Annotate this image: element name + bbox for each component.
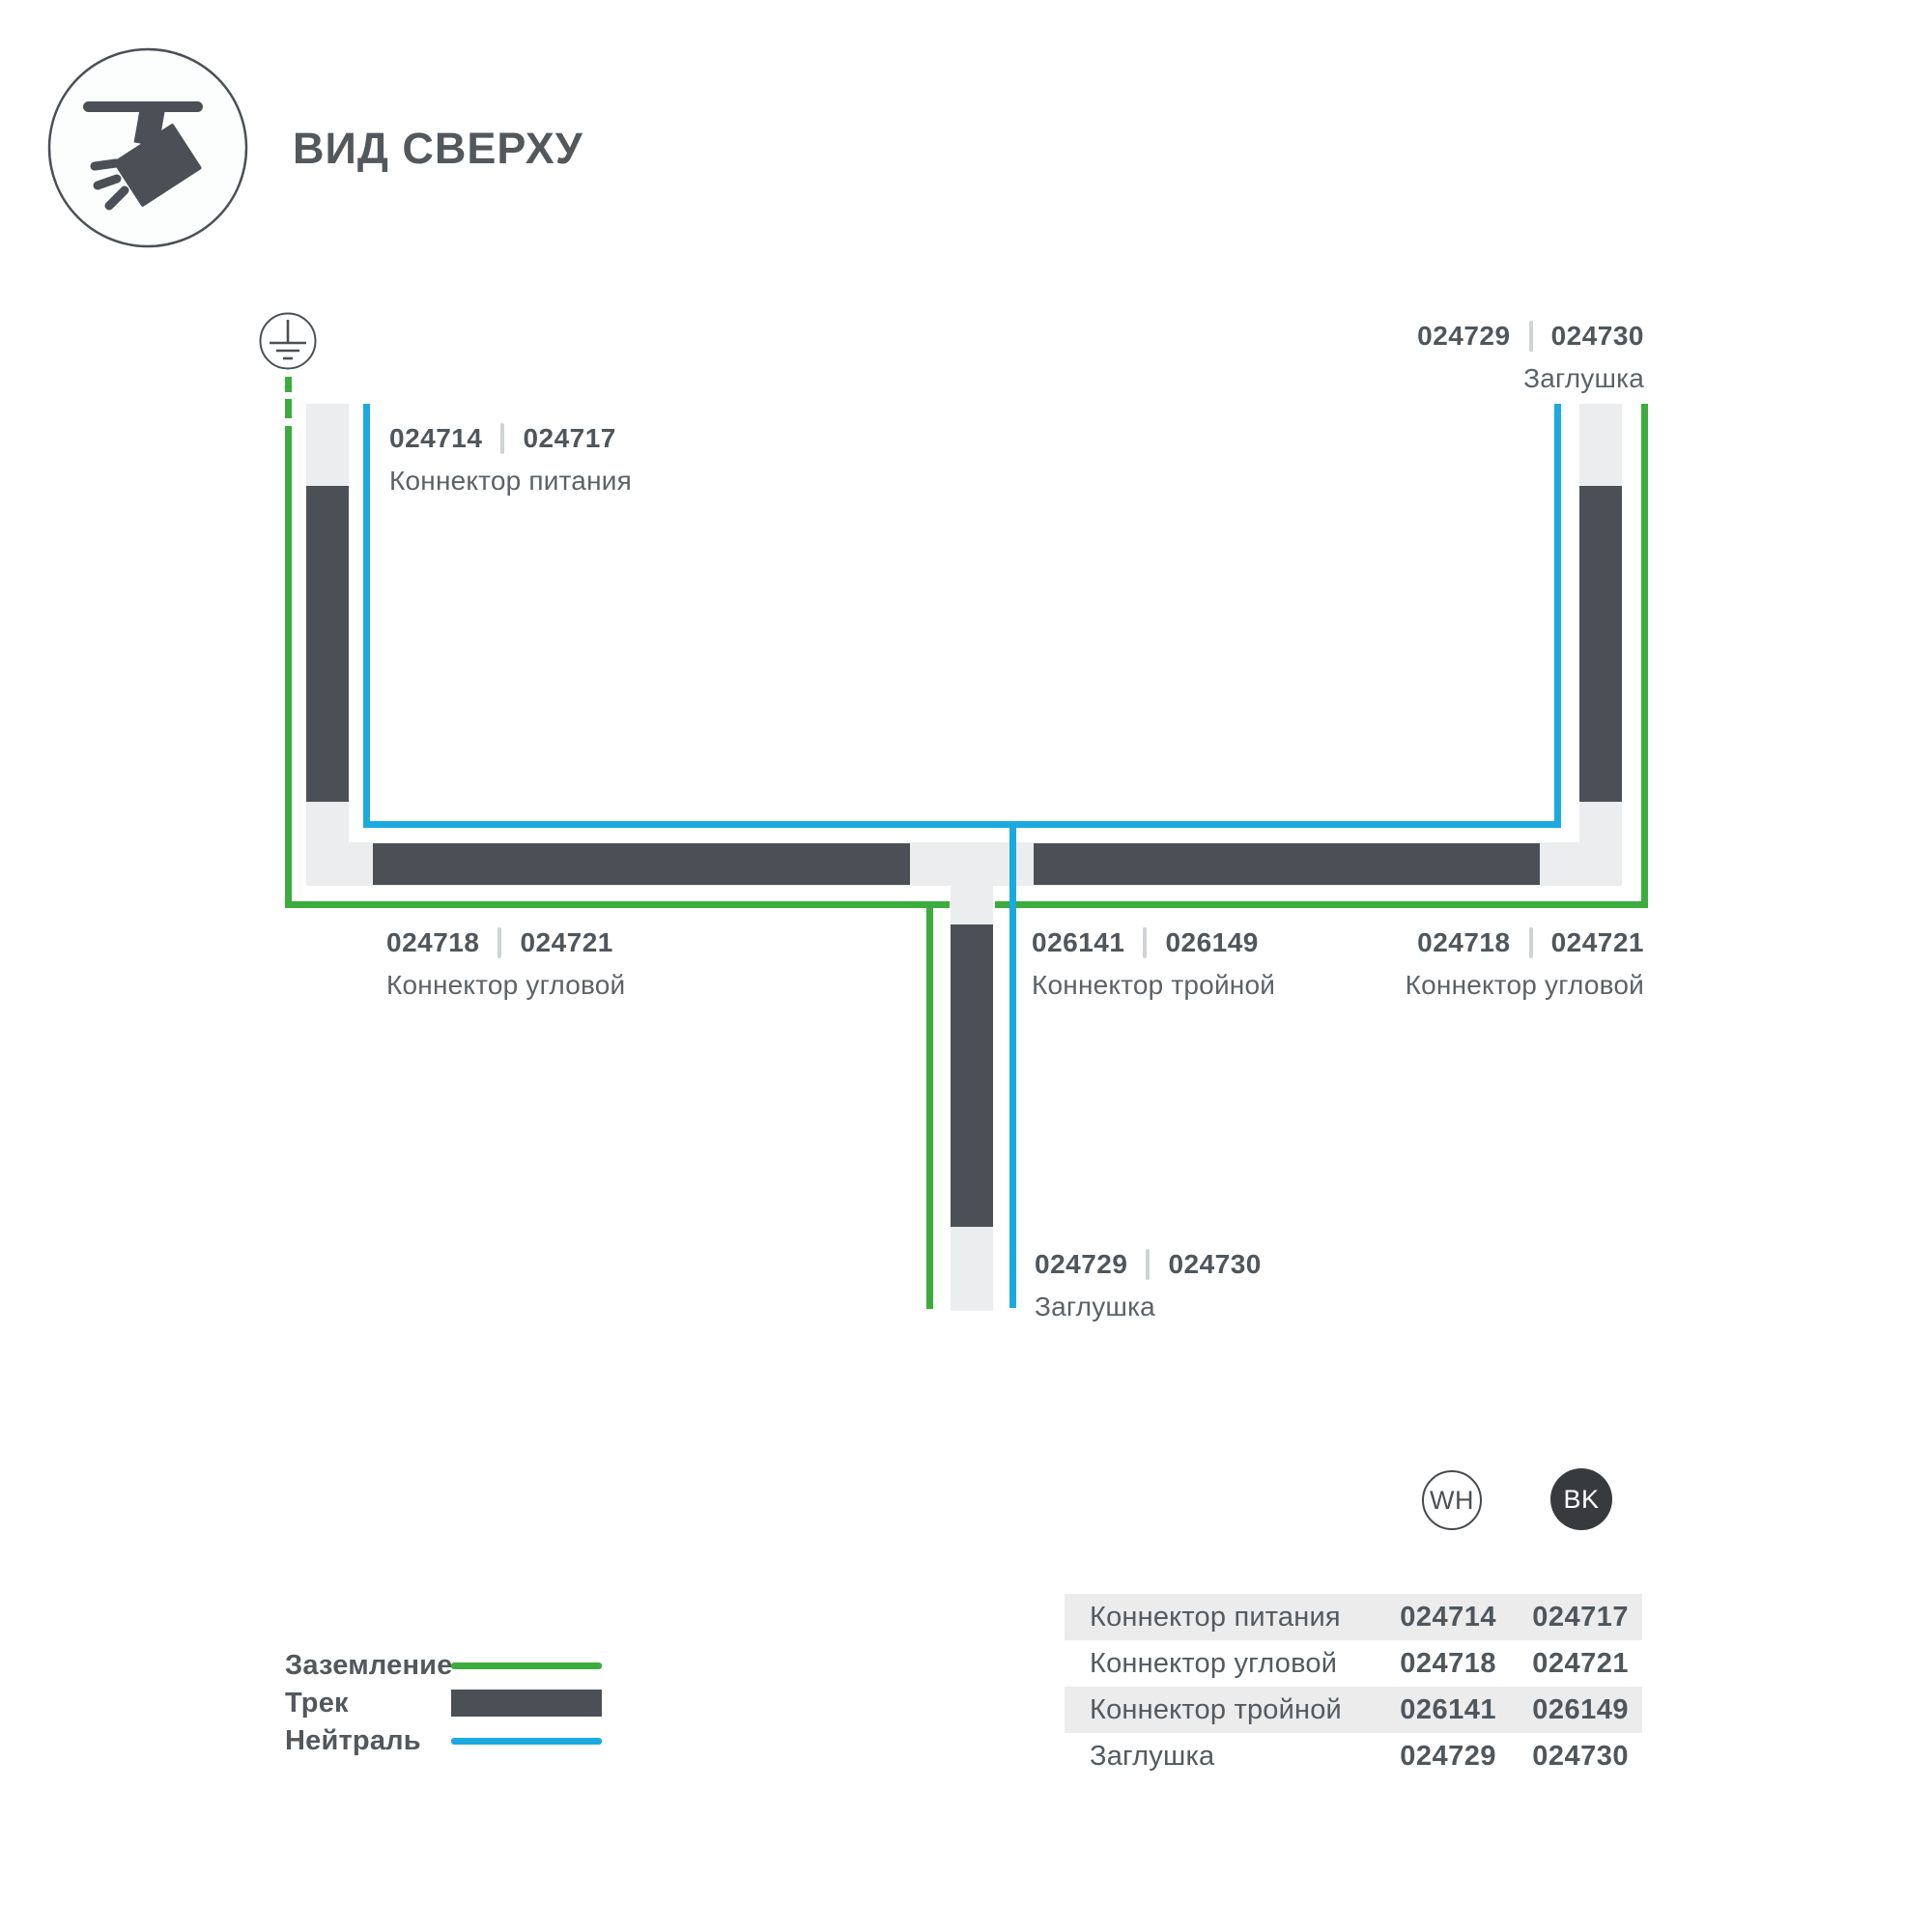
page-title: ВИД СВЕРХУ bbox=[293, 124, 583, 174]
ground-line-right bbox=[1641, 404, 1648, 908]
legend-label: Заземление bbox=[285, 1650, 451, 1682]
track-segment-right bbox=[1579, 486, 1622, 802]
part-name: Коннектор угловой bbox=[1406, 966, 1644, 1004]
part-numbers: 024729024730 bbox=[1035, 1245, 1262, 1288]
number-separator bbox=[1529, 321, 1533, 352]
number-separator bbox=[500, 423, 504, 454]
row-wh-number: 024729 bbox=[1395, 1741, 1496, 1773]
label-endcap-bottom: 024729024730 Заглушка bbox=[1035, 1245, 1262, 1325]
row-bk-number: 024717 bbox=[1496, 1602, 1642, 1634]
part-numbers: 024729024730 bbox=[1417, 317, 1644, 359]
row-name: Заглушка bbox=[1065, 1741, 1395, 1773]
row-name: Коннектор питания bbox=[1065, 1602, 1395, 1634]
number-separator bbox=[1146, 1249, 1150, 1280]
ground-icon bbox=[259, 312, 317, 370]
ground-line-bottom-b bbox=[995, 901, 1648, 908]
neutral-line-right bbox=[1554, 404, 1561, 828]
number-separator bbox=[1529, 927, 1533, 958]
ground-line-dash-1 bbox=[285, 377, 292, 392]
ground-line-dash-2 bbox=[285, 399, 292, 418]
label-corner-connector-right: 024718024721 Коннектор угловой bbox=[1406, 923, 1644, 1004]
neutral-line-bottom bbox=[363, 821, 1561, 828]
neutral-line-left bbox=[363, 404, 370, 828]
row-bk-number: 024730 bbox=[1496, 1741, 1642, 1773]
track-segment-bottom-left bbox=[373, 843, 910, 885]
number-separator bbox=[497, 927, 501, 958]
part-numbers: 024714024717 bbox=[389, 419, 632, 462]
black-variant-badge: BK bbox=[1550, 1468, 1612, 1530]
ground-line-bottom-a bbox=[285, 901, 950, 908]
label-corner-connector-left: 024718024721 Коннектор угловой bbox=[386, 923, 625, 1004]
ground-line-swatch bbox=[451, 1662, 602, 1669]
number-separator bbox=[1143, 927, 1147, 958]
legend-label: Трек bbox=[285, 1688, 451, 1719]
track-segment-bottom-right bbox=[1034, 843, 1540, 885]
part-numbers: 026141026149 bbox=[1032, 923, 1275, 966]
part-name: Заглушка bbox=[1035, 1288, 1262, 1325]
track-bar-swatch bbox=[451, 1690, 602, 1717]
table-row: Коннектор тройной 026141 026149 bbox=[1065, 1687, 1642, 1733]
legend-row-neutral: Нейтраль bbox=[285, 1722, 602, 1759]
part-name: Коннектор тройной bbox=[1032, 966, 1275, 1004]
table-row: Коннектор питания 024714 024717 bbox=[1065, 1594, 1642, 1640]
ground-line-left bbox=[285, 426, 292, 908]
table-row: Заглушка 024729 024730 bbox=[1065, 1733, 1642, 1779]
track-segment-stem bbox=[951, 924, 993, 1227]
row-wh-number: 024714 bbox=[1395, 1602, 1496, 1634]
label-endcap-top-right: 024729024730 Заглушка bbox=[1417, 317, 1644, 397]
page: ВИД СВЕРХУ bbox=[0, 0, 1932, 1932]
row-name: Коннектор угловой bbox=[1065, 1648, 1395, 1680]
ground-line-middle bbox=[926, 908, 933, 1309]
white-variant-badge: WH bbox=[1422, 1470, 1482, 1530]
legend-row-track: Трек bbox=[285, 1685, 602, 1721]
table-row: Коннектор угловой 024718 024721 bbox=[1065, 1640, 1642, 1687]
legend-row-ground: Заземление bbox=[285, 1647, 602, 1684]
row-bk-number: 026149 bbox=[1496, 1694, 1642, 1726]
legend-label: Нейтраль bbox=[285, 1725, 451, 1757]
part-name: Коннектор угловой bbox=[386, 966, 625, 1004]
part-name: Заглушка bbox=[1417, 359, 1644, 397]
label-triple-connector: 026141026149 Коннектор тройной bbox=[1032, 923, 1275, 1004]
track-segment-left bbox=[306, 486, 349, 802]
part-name: Коннектор питания bbox=[389, 462, 632, 499]
track-spotlight-icon bbox=[46, 46, 249, 249]
row-wh-number: 026141 bbox=[1395, 1694, 1496, 1726]
neutral-line-middle bbox=[1009, 824, 1016, 1308]
row-name: Коннектор тройной bbox=[1065, 1694, 1395, 1726]
neutral-line-swatch bbox=[451, 1738, 602, 1745]
parts-table: Коннектор питания 024714 024717 Коннекто… bbox=[1065, 1594, 1642, 1779]
part-numbers: 024718024721 bbox=[1406, 923, 1644, 966]
row-bk-number: 024721 bbox=[1496, 1648, 1642, 1680]
label-power-connector: 024714024717 Коннектор питания bbox=[389, 419, 632, 499]
part-numbers: 024718024721 bbox=[386, 923, 625, 966]
row-wh-number: 024718 bbox=[1395, 1648, 1496, 1680]
